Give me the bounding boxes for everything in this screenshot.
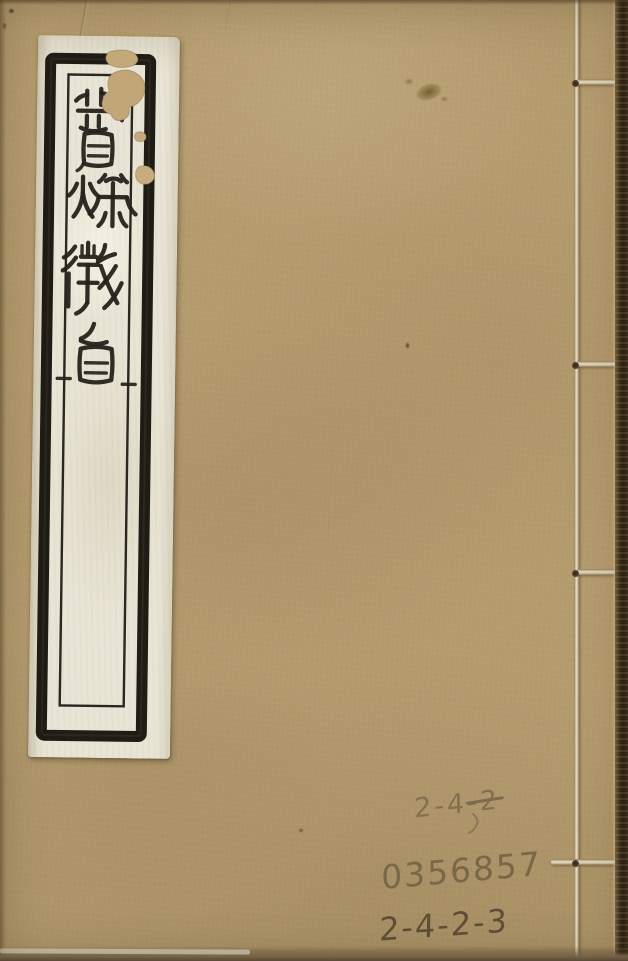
page-block-edge	[615, 0, 628, 961]
title-label	[28, 35, 180, 759]
label-border-rough	[42, 59, 150, 736]
ink-stain	[440, 96, 449, 102]
stitch-hole	[572, 362, 579, 369]
stitch-hole	[572, 570, 579, 577]
title-char-2	[68, 174, 136, 226]
speck	[405, 342, 410, 349]
ink-stain	[404, 78, 414, 85]
label-inner-border	[60, 74, 133, 706]
title-char-3	[62, 242, 122, 314]
cover-left-edge	[0, 0, 6, 961]
title-char-4	[79, 324, 113, 383]
book-cover-photo: 2-4-2 0356857 2-4-2-3	[0, 0, 628, 961]
label-outer-border	[41, 58, 150, 736]
speck	[8, 8, 15, 14]
cover-top-edge	[0, 0, 628, 5]
stitch-hole	[572, 80, 579, 87]
binding-thread-vertical	[574, 0, 579, 961]
correction-mark	[468, 812, 488, 834]
stitch-hole	[572, 860, 579, 867]
title-label-art	[28, 35, 180, 759]
speck	[298, 828, 304, 833]
